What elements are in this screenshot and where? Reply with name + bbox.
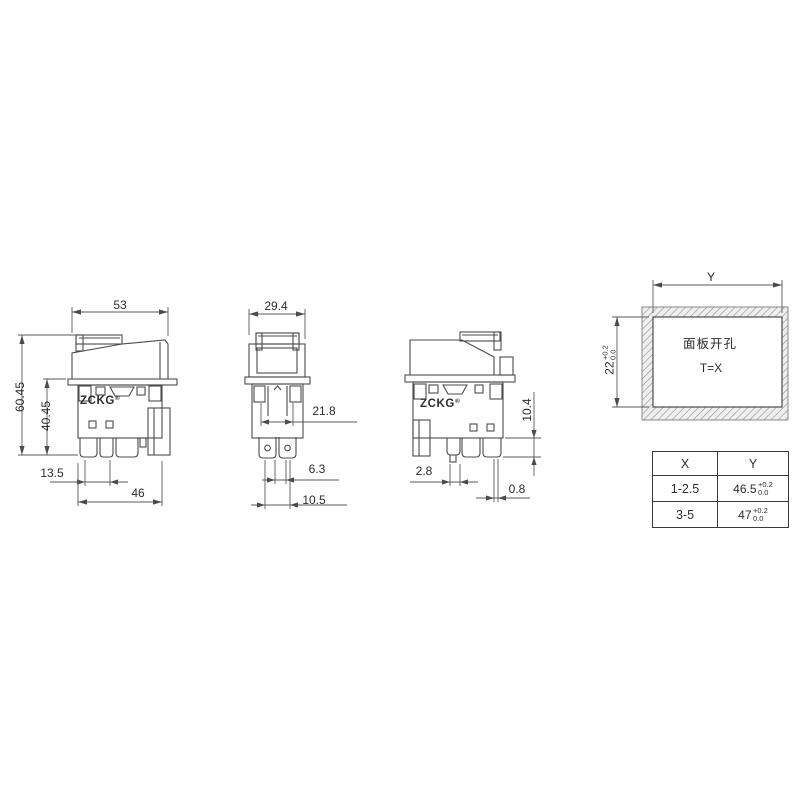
dim-label-22-tolerance: 22 +0.2 0.0 [602,345,617,375]
dim-label-10-4: 10.4 [521,398,533,421]
dim-label-Y: Y [707,271,715,283]
cell-x-range-1: 1-2.5 [653,476,718,502]
dim-label-29-4: 29.4 [264,300,287,312]
technical-drawing-page: 53 60.45 40.45 13.5 46 ZCKG® 29.4 21.8 6… [0,0,800,800]
side-view-right-drawing [398,318,578,513]
table-header-y: Y [718,452,789,476]
terminals-mirrored [447,438,501,462]
switch-body-front [252,384,303,438]
tolerance-lower: 0.0 [753,515,768,523]
switch-body-mirrored [413,382,503,456]
tolerance-lower: 0.0 [758,489,773,497]
y-value-tolerance-stack: +0.2 0.0 [753,507,768,522]
terminals [80,438,146,457]
rocker-cap-mirrored [410,332,513,375]
dim-22-value: 22 [603,361,615,374]
dim-label-40-45: 40.45 [40,401,52,431]
dim-46 [78,461,162,506]
dim-29-4 [249,309,305,339]
dim-21-8 [261,403,357,426]
cell-x-range-2: 3-5 [653,502,718,528]
cell-y-value-2: 47 +0.2 0.0 [718,502,789,528]
dim-label-21-8: 21.8 [312,405,335,417]
dim-label-13-5: 13.5 [40,467,63,479]
dim-label-0-8: 0.8 [509,483,526,495]
panel-thickness-table: X Y 1-2.5 46.5 +0.2 0.0 3-5 47 [652,451,789,528]
y-value-main: 47 [738,508,751,522]
panel-cutout-caption: 面板开孔 [683,338,737,350]
dim-22-tolerance-stack: +0.2 0.0 [602,345,617,360]
dim-label-46: 46 [131,487,144,499]
mounting-flange-front [245,377,310,384]
terminals-front [259,437,296,458]
cell-y-value-1: 46.5 +0.2 0.0 [718,476,789,502]
dim-10-5 [251,460,347,509]
brand-text: ZCKG [420,398,455,410]
dim-label-53: 53 [113,299,126,311]
table-row: 1-2.5 46.5 +0.2 0.0 [653,476,789,502]
dim-label-2-8: 2.8 [416,465,433,477]
dim-label-60-45: 60.45 [14,382,26,412]
table-header-row: X Y [653,452,789,476]
mounting-flange-mirrored [405,375,515,382]
brand-text: ZCKG [80,395,115,407]
table-header-x: X [653,452,718,476]
rocker-cap-front [249,333,305,377]
brand-logo-right-view: ZCKG® [420,398,460,410]
dim-label-6-3: 6.3 [309,463,326,475]
dim-60-45 [18,335,78,455]
table-row: 3-5 47 +0.2 0.0 [653,502,789,528]
panel-thickness-formula: T=X [700,362,722,374]
registered-mark: ® [455,398,460,405]
brand-logo-left-view: ZCKG® [80,395,120,407]
dim-6-3 [262,460,339,484]
registered-mark: ® [115,395,120,402]
y-value-tolerance-stack: +0.2 0.0 [758,481,773,496]
rocker-cap [72,335,168,379]
y-value-main: 46.5 [733,482,756,496]
dim-label-10-5: 10.5 [302,494,325,506]
tolerance-lower: 0.0 [609,345,617,360]
mounting-flange [68,379,177,385]
